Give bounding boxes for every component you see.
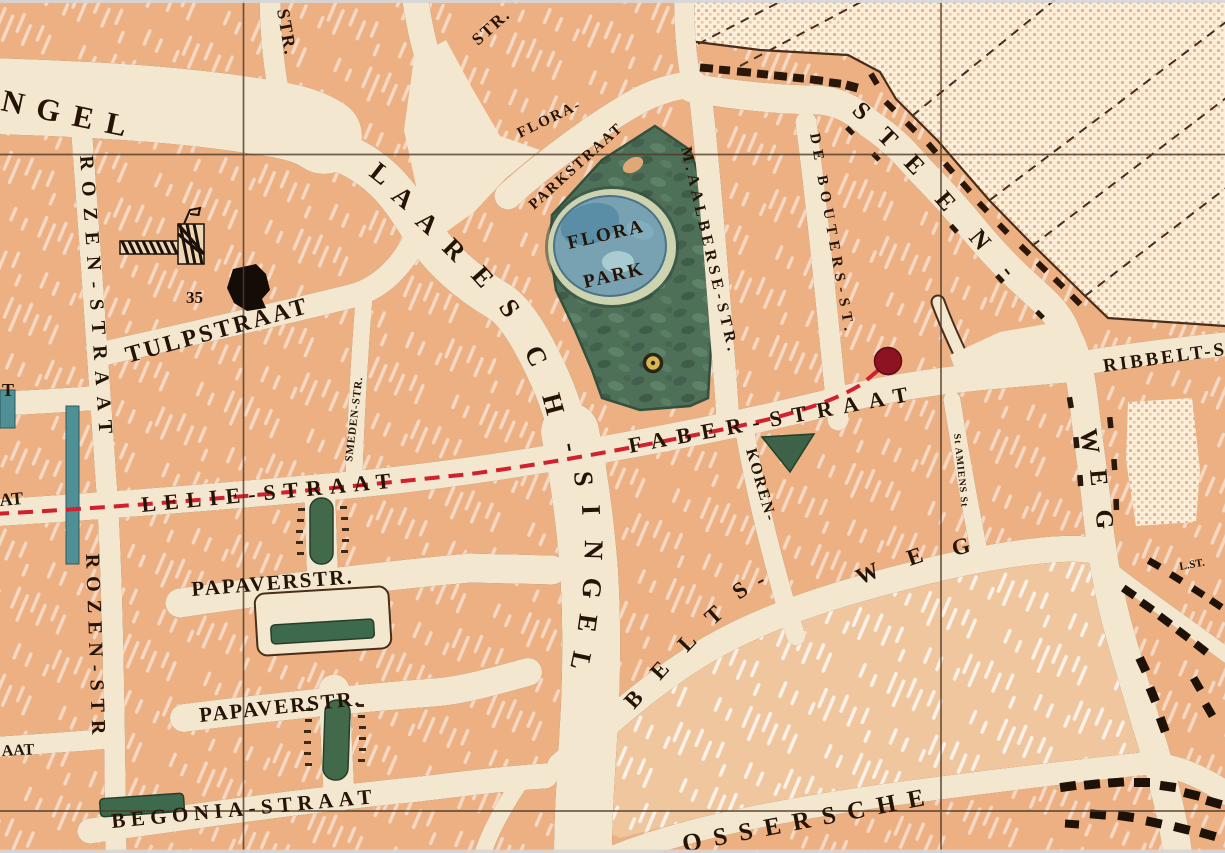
svg-text:I: I: [576, 504, 606, 516]
svg-text:T: T: [2, 380, 14, 400]
svg-text:G: G: [576, 576, 608, 600]
svg-text:N: N: [578, 540, 609, 561]
svg-text:AT: AT: [0, 488, 24, 510]
svg-text:G: G: [1090, 509, 1118, 530]
svg-text:S: S: [568, 470, 599, 488]
svg-text:W: W: [1074, 427, 1104, 456]
svg-text:AAT: AAT: [1, 741, 35, 760]
svg-text:E: E: [1084, 468, 1112, 487]
svg-text:35: 35: [186, 288, 203, 307]
